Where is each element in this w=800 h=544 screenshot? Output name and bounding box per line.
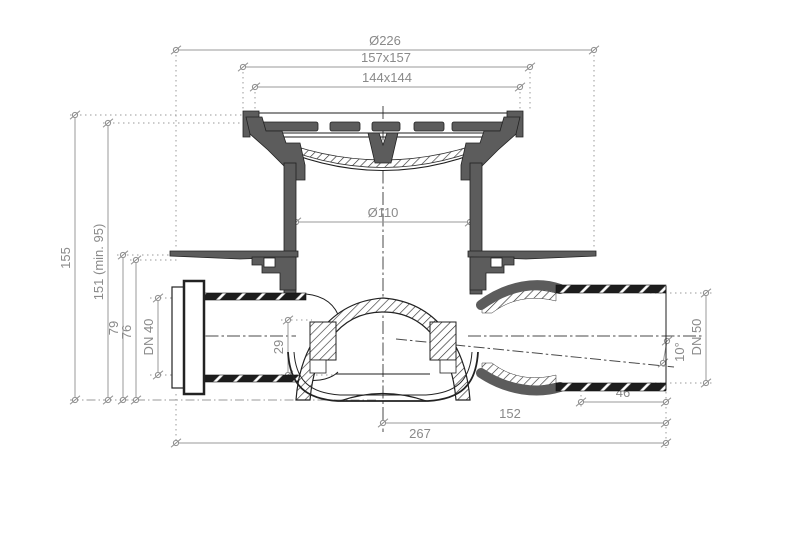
dim-total-length: 267 [409, 426, 431, 441]
grate-slat [330, 122, 360, 131]
floor-drain-section-drawing: Ø226 157x157 144x144 Ø110 46 152 267 155… [0, 0, 800, 544]
grate-slat [258, 122, 318, 131]
drain-assembly [170, 111, 666, 401]
dim-total-height: 155 [58, 247, 73, 269]
dim-trap-depth: 29 [271, 340, 286, 354]
trap-wall-left [310, 322, 336, 360]
dim-grate-size: 144x144 [362, 70, 412, 85]
dim-frame-size: 157x157 [361, 50, 411, 65]
dimension-labels: Ø226 157x157 144x144 Ø110 46 152 267 155… [58, 33, 704, 441]
dim-outlet-center-length: 152 [499, 406, 521, 421]
dim-body-diameter: Ø110 [368, 205, 399, 220]
technical-drawing-page: Ø226 157x157 144x144 Ø110 46 152 267 155… [0, 0, 800, 544]
dim-seal-level-height: 76 [119, 325, 134, 339]
dim-outlet-pipe: DN 50 [689, 319, 704, 356]
dim-inlet-pipe: DN 40 [141, 319, 156, 356]
dim-install-height: 151 (min. 95) [91, 224, 106, 301]
dim-outlet-slope: 10° [672, 342, 687, 362]
outlet-pipe-dn50 [481, 285, 666, 391]
grate-slat [452, 122, 508, 131]
grate-slat [414, 122, 444, 131]
grate-slat [372, 122, 400, 131]
trap-wall-right [430, 322, 456, 360]
dim-flange-diameter: Ø226 [369, 33, 401, 48]
pipe-gasket-ring [184, 281, 204, 394]
